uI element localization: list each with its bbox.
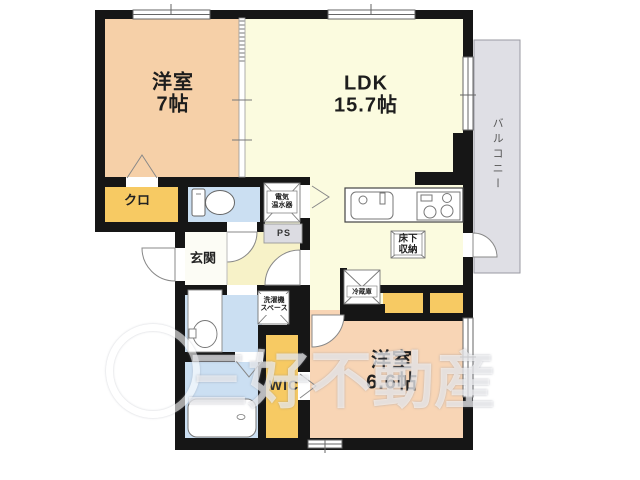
balcony-label: バルコニー — [491, 118, 503, 193]
washbasin-icon — [188, 290, 222, 352]
bedroom-bottom-name: 洋室 — [366, 350, 418, 372]
sink-icon — [351, 192, 393, 219]
window-ldk-top — [328, 4, 415, 19]
floor-plan-drawing — [0, 0, 640, 480]
refrigerator-label: 冷蔵庫 — [352, 288, 372, 295]
toilet-icon — [192, 189, 235, 216]
water-heater-label: 電気 温水器 — [272, 194, 293, 210]
entrance-door-arc — [142, 248, 175, 281]
bathtub-icon — [188, 399, 256, 437]
bedroom-top-label: 洋室 7帖 — [152, 72, 194, 117]
ldk-size: 15.7帖 — [334, 95, 398, 117]
wic-label: WIC — [269, 378, 299, 394]
entrance-label: 玄関 — [190, 252, 216, 267]
closet-top-label: クロ — [124, 194, 150, 209]
kitchen-counter — [345, 188, 463, 222]
bedroom-top-name: 洋室 — [152, 72, 194, 94]
washer-space-label: 洗濯機 スペース — [260, 297, 287, 313]
stove-icon — [417, 192, 460, 220]
window-bedroom-top — [133, 4, 210, 19]
ldk-label: LDK 15.7帖 — [334, 73, 398, 118]
refrigerator-box — [344, 270, 380, 304]
ldk-name: LDK — [334, 73, 398, 95]
bedroom-bottom-label: 洋室 6.6帖 — [366, 350, 418, 395]
window-bedroom-bottom-small — [308, 440, 342, 453]
floor-plan: 洋室 7帖 LDK 15.7帖 洋室 6.6帖 クロ 玄関 WIC PS バルコ… — [0, 0, 640, 480]
underfloor-storage-label: 床下 収納 — [398, 234, 417, 255]
bedroom-top-size: 7帖 — [152, 94, 194, 116]
bedroom-bottom-size: 6.6帖 — [366, 372, 418, 394]
pipe-space-label: PS — [277, 228, 291, 238]
